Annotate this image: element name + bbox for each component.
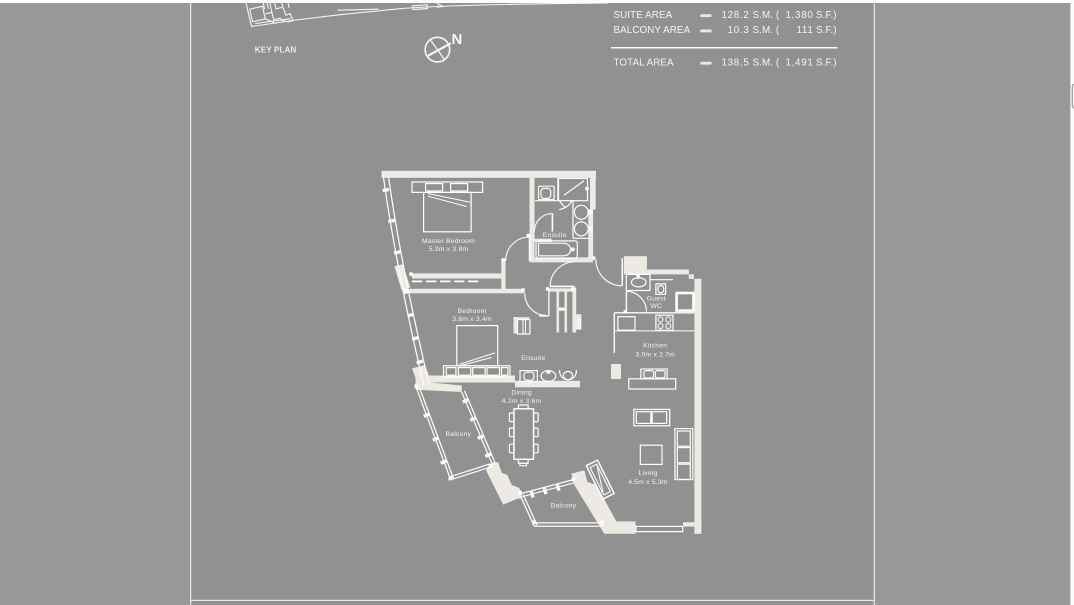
svg-text:Ensuite: Ensuite xyxy=(521,355,545,362)
svg-text:111: 111 xyxy=(797,25,814,36)
svg-text:3.8m x 3.4m: 3.8m x 3.4m xyxy=(452,316,492,323)
svg-text:138.5: 138.5 xyxy=(721,57,749,68)
svg-text:Living: Living xyxy=(639,470,658,477)
svg-text:Guest: Guest xyxy=(647,296,666,303)
svg-text:128.2: 128.2 xyxy=(721,10,749,21)
svg-text:Dining: Dining xyxy=(511,390,531,397)
svg-text:4.5m x 5.3m: 4.5m x 5.3m xyxy=(628,479,668,486)
svg-text:Ensuite: Ensuite xyxy=(543,232,567,239)
svg-text:5.3m x 3.8m: 5.3m x 3.8m xyxy=(429,246,469,253)
svg-text:1,491: 1,491 xyxy=(785,57,813,68)
svg-text:S.M. (: S.M. ( xyxy=(753,10,780,21)
svg-text:10.3: 10.3 xyxy=(728,25,750,36)
svg-text:S.F.): S.F.) xyxy=(816,57,837,68)
svg-text:SUITE AREA: SUITE AREA xyxy=(614,10,673,21)
svg-text:Master Bedroom: Master Bedroom xyxy=(422,238,475,245)
svg-text:S.F.): S.F.) xyxy=(816,25,837,36)
svg-text:3.0m x 2.7m: 3.0m x 2.7m xyxy=(635,351,675,358)
svg-text:Kitchen: Kitchen xyxy=(643,343,667,350)
svg-text:S.M. (: S.M. ( xyxy=(753,57,780,68)
svg-text:Bedroom: Bedroom xyxy=(458,308,487,315)
svg-text:N: N xyxy=(452,31,463,48)
svg-text:S.F.): S.F.) xyxy=(816,10,837,21)
svg-text:Balcony: Balcony xyxy=(551,503,577,510)
svg-text:TOTAL AREA: TOTAL AREA xyxy=(614,57,675,68)
svg-text:S.M. (: S.M. ( xyxy=(753,25,780,36)
svg-text:Balcony: Balcony xyxy=(446,431,472,438)
svg-text:4.2m x 3.6m: 4.2m x 3.6m xyxy=(502,398,542,405)
svg-text:KEY PLAN: KEY PLAN xyxy=(255,45,297,54)
svg-text:WC: WC xyxy=(650,303,662,310)
svg-text:1,380: 1,380 xyxy=(785,10,813,21)
svg-text:BALCONY AREA: BALCONY AREA xyxy=(614,25,691,36)
